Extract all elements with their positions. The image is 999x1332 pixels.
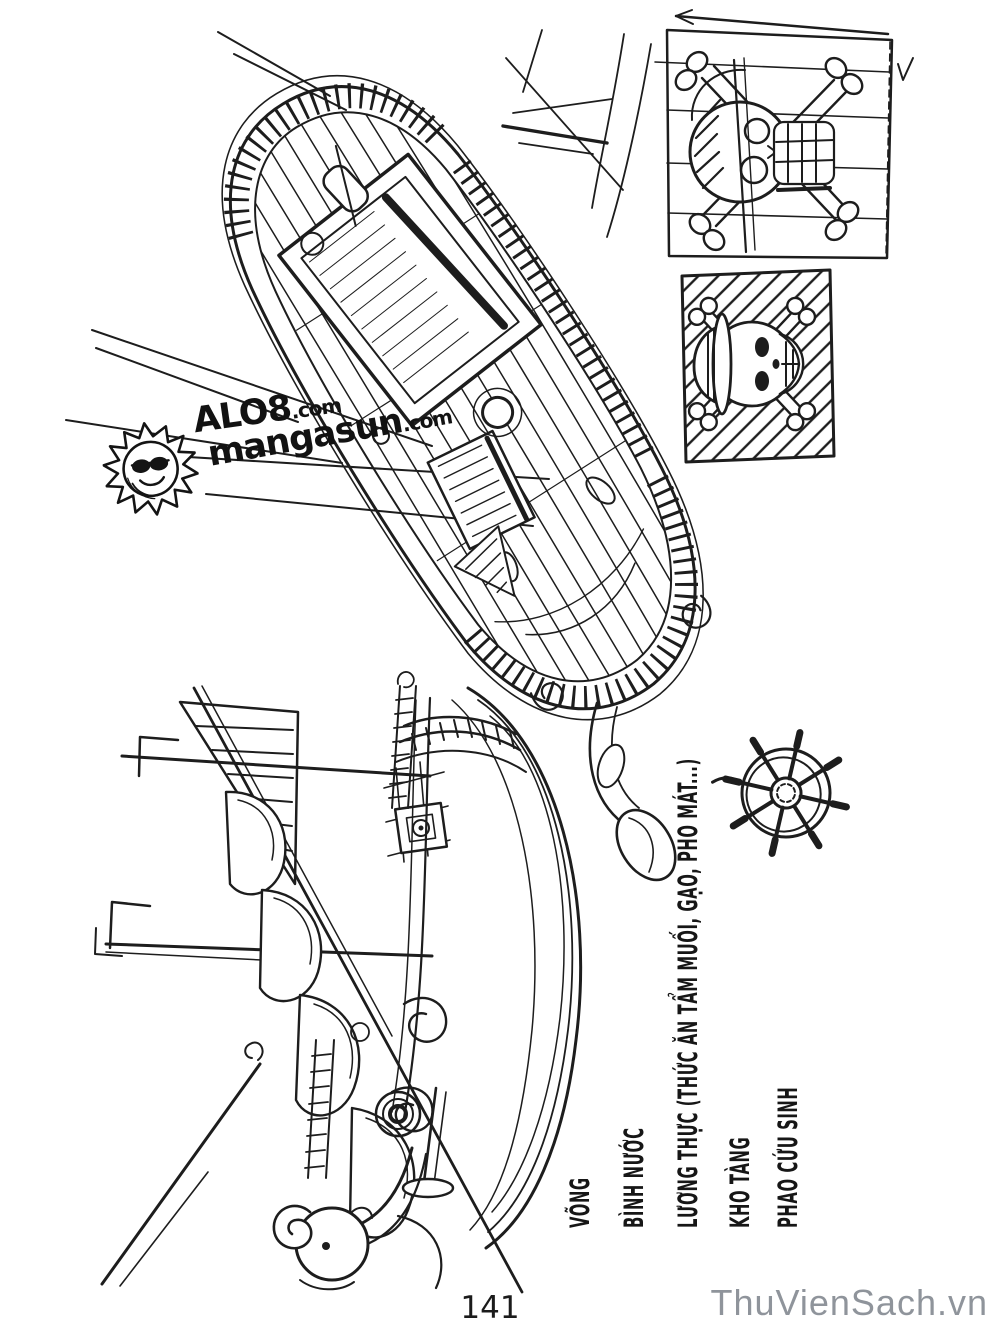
- strawhat-flag-sketch: [678, 266, 838, 466]
- sun-face-icon: [97, 415, 203, 523]
- label-binh-nuoc: BÌNH NƯỚC: [618, 1127, 652, 1228]
- ship-side-view-sketch: [95, 672, 581, 1292]
- site-watermark: ThuVienSach.vn: [680, 1282, 988, 1324]
- page-number: 141: [450, 1290, 530, 1326]
- ships-wheel-sketch: [700, 716, 860, 867]
- label-kho-tang: KHO TÀNG: [724, 1137, 758, 1228]
- label-phao-cuu-sinh: PHAO CỨU SINH: [772, 1087, 806, 1228]
- jolly-roger-study-sketch: [655, 10, 913, 258]
- label-luong-thuc: LƯƠNG THỰC (THỨC ĂN TẨM MUỐI, GẠO, PHO M…: [672, 758, 706, 1228]
- label-vong: VÕNG: [564, 1177, 598, 1228]
- manga-sketch-page: ALO8.com mangasun.com VÕNG BÌNH NƯỚC LƯƠ…: [0, 0, 999, 1332]
- sketch-artwork: [0, 0, 999, 1332]
